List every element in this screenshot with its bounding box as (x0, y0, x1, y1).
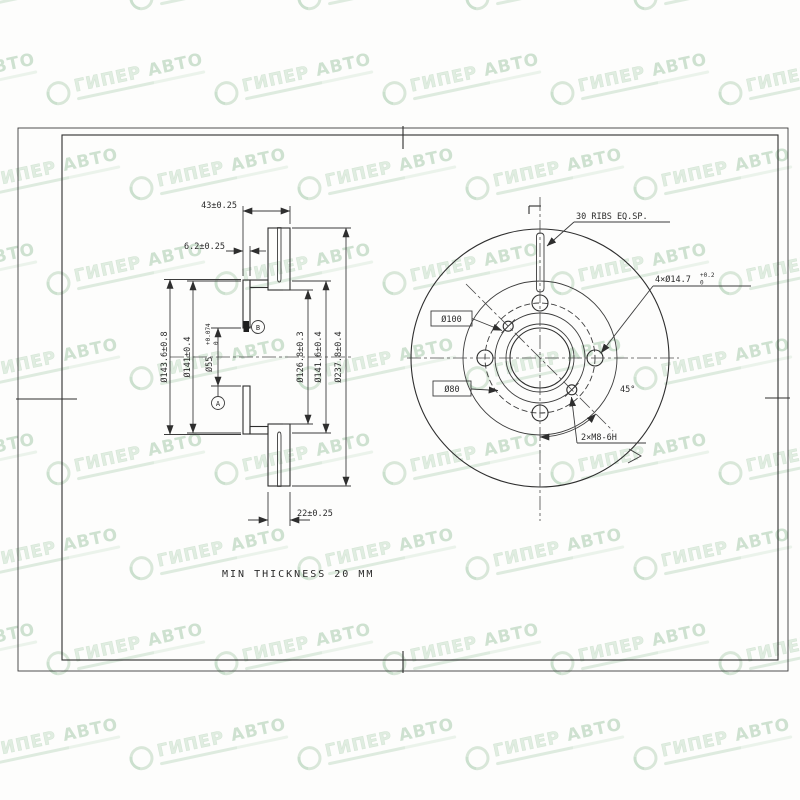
dim-bore-tol-up: +0.074 (205, 323, 212, 345)
dim-ring-id-label: Ø141.6±0.4 (313, 331, 324, 382)
label-service-holes: 2×M8-6H (572, 397, 647, 443)
dim-flange-od-label: Ø143.6±0.8 (159, 331, 170, 382)
label-bolt-holes-tol-up: +0.2 (700, 272, 715, 279)
front-view: Ø100 Ø80 30 RIBS EQ.SP. 4×Ø14.7 +0.2 0 (407, 197, 751, 521)
dim-angle-45-label: 45° (620, 385, 635, 395)
label-pcd: Ø100 (431, 311, 502, 331)
drawing-frame (16, 126, 790, 673)
label-bolt-holes: 4×Ø14.7 +0.2 0 (601, 272, 751, 353)
drawing-sheet: ГИПЕР АВТОГИПЕР АВТОГИПЕР АВТОГИПЕР АВТО… (0, 0, 800, 800)
dim-vent-id-label: Ø126.8±0.3 (295, 331, 306, 382)
dim-disc-od-label: Ø237.8±0.4 (333, 331, 344, 382)
label-ribs: 30 RIBS EQ.SP. (547, 212, 670, 246)
dim-angle-45: 45° (540, 385, 635, 437)
min-thickness-note: MIN THICKNESS 20 MM (222, 569, 374, 580)
label-bolt-holes-tol-dn: 0 (700, 280, 704, 287)
label-service-holes-text: 2×M8-6H (581, 433, 617, 443)
label-bolt-holes-text: 4×Ø14.7 (655, 274, 691, 285)
label-ribs-text: 30 RIBS EQ.SP. (576, 212, 648, 222)
dim-overall-width-label: 43±0.25 (201, 201, 237, 211)
label-pcd-text: Ø100 (441, 314, 461, 325)
vent-slot-upper (278, 228, 282, 282)
vent-slot-lower (278, 432, 282, 486)
section-view: 43±0.25 6.2±0.25 22±0.25 (159, 201, 352, 526)
dim-bore-tol-dn: 0 (213, 341, 220, 345)
balloon-b: B (244, 321, 265, 334)
dim-hat-face-label: 6.2±0.25 (184, 242, 225, 252)
dim-bore-label: Ø55 (204, 357, 215, 372)
label-register-text: Ø80 (444, 384, 459, 395)
balloon-b-label: B (256, 324, 260, 332)
label-register: Ø80 (433, 381, 498, 396)
dim-flange-d-label: Ø141±0.4 (182, 337, 193, 378)
dim-ring-thickness-label: 22±0.25 (297, 509, 333, 519)
diagonal-centerline (466, 284, 613, 431)
dim-overall-width: 43±0.25 (201, 201, 290, 276)
dim-hat-face-thickness: 6.2±0.25 (184, 242, 266, 276)
brake-disc-drawing: 43±0.25 6.2±0.25 22±0.25 (0, 0, 800, 800)
datum-target-mark (244, 321, 250, 332)
dim-ring-thickness: 22±0.25 (248, 492, 333, 526)
balloon-a-label: A (216, 400, 221, 408)
section-cut-mark (529, 206, 541, 214)
dim-bore: Ø55 +0.074 0 A (204, 323, 241, 410)
